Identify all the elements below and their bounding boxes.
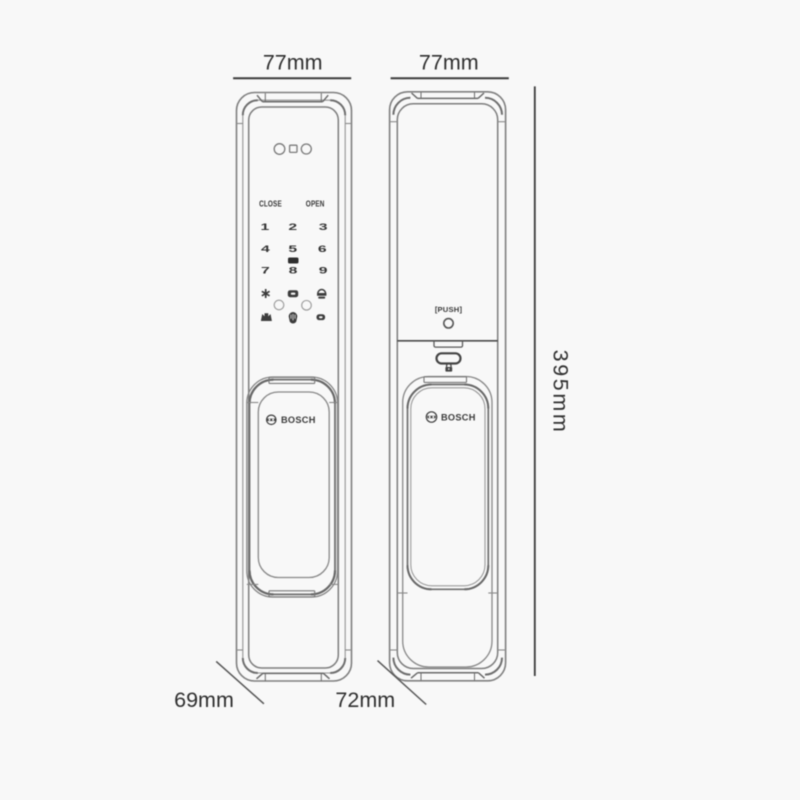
svg-text:9: 9 — [319, 265, 328, 276]
svg-text:5: 5 — [288, 243, 297, 254]
svg-text:77mm: 77mm — [419, 51, 479, 75]
svg-text:69mm: 69mm — [174, 688, 234, 712]
svg-text:BOSCH: BOSCH — [281, 415, 316, 425]
svg-text:1: 1 — [261, 222, 270, 233]
svg-text:6: 6 — [318, 243, 327, 254]
svg-text:7: 7 — [261, 265, 270, 276]
svg-text:CLOSE: CLOSE — [259, 200, 282, 209]
svg-text:4: 4 — [261, 243, 271, 254]
svg-text:77mm: 77mm — [263, 51, 323, 75]
svg-text:BOSCH: BOSCH — [441, 413, 476, 423]
svg-text:2: 2 — [288, 222, 297, 233]
svg-text:8: 8 — [289, 265, 298, 276]
svg-text:[PUSH]: [PUSH] — [435, 305, 463, 314]
svg-text:3: 3 — [319, 222, 328, 233]
svg-text:OPEN: OPEN — [306, 200, 325, 209]
svg-text:72mm: 72mm — [335, 688, 395, 712]
svg-text:395mm: 395mm — [549, 350, 573, 435]
